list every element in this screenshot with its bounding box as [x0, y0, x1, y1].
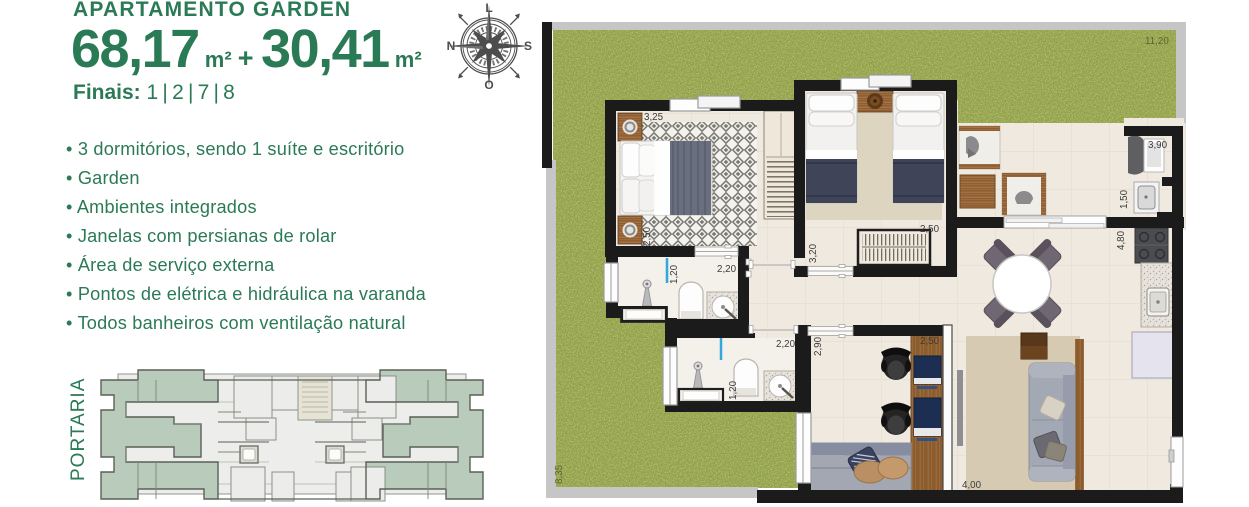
svg-text:2,20: 2,20 [776, 339, 796, 350]
svg-text:3,25: 3,25 [644, 112, 664, 123]
svg-text:2,90: 2,90 [813, 336, 824, 356]
svg-text:11,20: 11,20 [1145, 36, 1169, 47]
svg-text:N: N [447, 39, 456, 53]
svg-text:8,35: 8,35 [554, 464, 565, 484]
svg-text:2,20: 2,20 [717, 264, 737, 275]
svg-text:2,50: 2,50 [920, 336, 940, 347]
svg-text:L: L [485, 2, 492, 15]
svg-text:3,20: 3,20 [808, 243, 819, 263]
svg-text:4,80: 4,80 [1116, 230, 1127, 250]
svg-text:2,50: 2,50 [920, 224, 940, 235]
svg-text:3,90: 3,90 [1148, 140, 1168, 151]
svg-text:4,00: 4,00 [962, 480, 982, 491]
svg-text:1,20: 1,20 [669, 264, 680, 284]
svg-text:S: S [524, 39, 532, 53]
svg-text:O: O [484, 78, 493, 90]
svg-text:1,50: 1,50 [1119, 189, 1130, 209]
svg-text:1,20: 1,20 [728, 380, 739, 400]
svg-text:2,50: 2,50 [642, 226, 653, 246]
